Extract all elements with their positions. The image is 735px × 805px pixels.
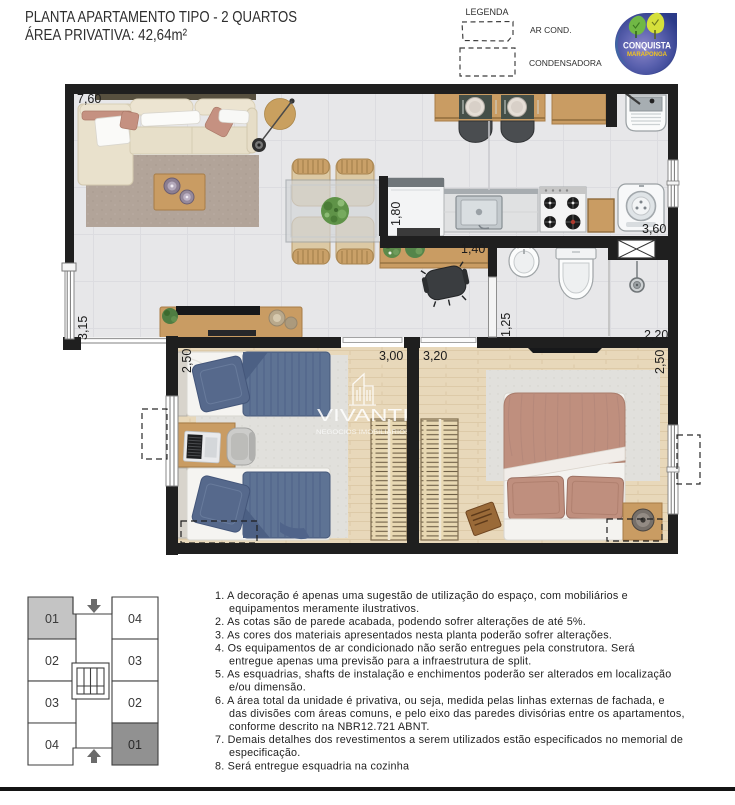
svg-text:conforme descrito na NBR12.721: conforme descrito na NBR12.721 ABNT. <box>229 721 430 733</box>
svg-text:03: 03 <box>128 654 142 668</box>
svg-text:1,40: 1,40 <box>461 242 485 256</box>
svg-text:3,15: 3,15 <box>76 316 90 340</box>
svg-text:01: 01 <box>45 612 59 626</box>
svg-text:entregue apenas uma previsão p: entregue apenas uma previsão para a infr… <box>229 656 532 668</box>
svg-text:01: 01 <box>128 738 142 752</box>
svg-text:especificação.: especificação. <box>229 747 301 759</box>
svg-text:3,20: 3,20 <box>423 349 447 363</box>
svg-text:equipamentos meramente ilustra: equipamentos meramente ilustrativos. <box>229 603 419 615</box>
svg-text:3. As cores dos materiais apre: 3. As cores dos materiais apresentados n… <box>215 629 612 641</box>
svg-text:7. Demais detalhes dos revesti: 7. Demais detalhes dos revestimentos a s… <box>215 734 683 746</box>
svg-text:CONDENSADORA: CONDENSADORA <box>529 58 602 68</box>
svg-text:VIVANTI: VIVANTI <box>317 405 409 425</box>
svg-text:e/ou dimensão.: e/ou dimensão. <box>229 682 306 694</box>
svg-text:6. A área total da unidade é p: 6. A área total da unidade é privativa, … <box>215 695 665 707</box>
svg-text:02: 02 <box>45 654 59 668</box>
svg-text:2,20: 2,20 <box>644 328 668 342</box>
svg-text:4. Os equipamentos de ar condi: 4. Os equipamentos de ar condicionado nã… <box>215 642 635 654</box>
svg-text:8. Será entregue esquadria na: 8. Será entregue esquadria na cozinha <box>215 760 409 772</box>
svg-text:1,80: 1,80 <box>389 202 403 226</box>
svg-text:04: 04 <box>128 612 142 626</box>
svg-text:2,50: 2,50 <box>180 349 194 373</box>
svg-text:das divisões com áreas comuns,: das divisões com áreas comuns, e pelo ei… <box>229 708 685 720</box>
svg-text:5. As esquadrias, shafts de in: 5. As esquadrias, shafts de instalação e… <box>215 669 672 681</box>
svg-text:2,50: 2,50 <box>653 350 667 374</box>
svg-text:3,60: 3,60 <box>642 222 666 236</box>
svg-text:AR COND.: AR COND. <box>530 25 572 35</box>
svg-text:LEGENDA: LEGENDA <box>465 7 508 17</box>
svg-text:ÁREA PRIVATIVA: 42,64m²: ÁREA PRIVATIVA: 42,64m² <box>25 25 188 44</box>
svg-text:02: 02 <box>128 696 142 710</box>
svg-text:MARAPONGA: MARAPONGA <box>627 51 667 58</box>
svg-text:7,60: 7,60 <box>77 92 101 106</box>
svg-text:1,25: 1,25 <box>499 313 513 337</box>
svg-text:3,00: 3,00 <box>379 349 403 363</box>
svg-text:2. As cotas são de parede acab: 2. As cotas são de parede acabada, poden… <box>215 616 586 628</box>
svg-text:PLANTA APARTAMENTO TIPO - 2 QU: PLANTA APARTAMENTO TIPO - 2 QUARTOS <box>25 9 297 26</box>
svg-text:NEGÓCIOS IMOBILIÁRIOS: NEGÓCIOS IMOBILIÁRIOS <box>316 429 410 436</box>
svg-text:04: 04 <box>45 738 59 752</box>
svg-text:03: 03 <box>45 696 59 710</box>
svg-text:1. A decoração é apenas uma su: 1. A decoração é apenas uma sugestão de … <box>215 590 628 602</box>
